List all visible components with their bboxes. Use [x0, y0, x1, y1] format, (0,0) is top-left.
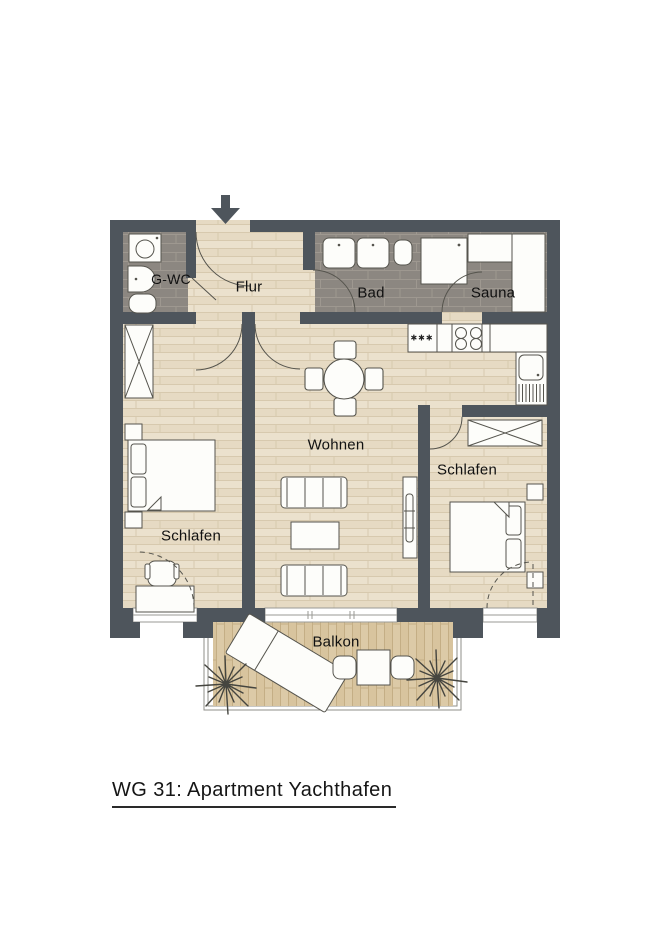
room-label-bad: Bad: [357, 285, 384, 302]
wall-segment: [482, 312, 547, 324]
wall-segment: [453, 622, 483, 638]
chair: [334, 341, 356, 359]
wall-segment: [110, 622, 140, 638]
kitchen-sink-icon: [519, 355, 543, 380]
sofa: [281, 477, 347, 508]
wall-segment: [537, 608, 560, 622]
bath-door-gap: [303, 270, 315, 312]
nightstand: [125, 424, 142, 440]
chair: [305, 368, 323, 390]
nightstand: [527, 484, 543, 500]
floorplan-page: G-WC Flur Bad Sauna Wohnen Schlafen Schl…: [0, 0, 670, 950]
tv-icon: [406, 494, 413, 542]
chair: [391, 656, 414, 679]
freezer-stars-icon: ✱✱✱: [410, 334, 433, 343]
sink-icon: [323, 238, 355, 268]
chair: [365, 368, 383, 390]
wall-segment: [547, 220, 560, 622]
room-label-gwc: G-WC: [151, 271, 191, 287]
wall-segment: [537, 622, 560, 638]
wall-segment: [110, 608, 133, 622]
wall-segment: [250, 220, 560, 232]
plan-title: WG 31: Apartment Yachthafen: [112, 779, 396, 808]
room-label-sauna: Sauna: [471, 285, 515, 302]
toilet-icon: [129, 294, 156, 313]
pillow: [131, 477, 146, 507]
pillow: [506, 539, 521, 568]
desk-chair: [148, 561, 176, 586]
entrance-arrow-icon: [211, 195, 240, 224]
wall-segment: [183, 622, 213, 638]
balcony-table: [357, 650, 390, 685]
wall-segment: [300, 312, 442, 324]
pillow: [131, 444, 146, 474]
sink-icon: [357, 238, 389, 268]
wall-segment: [123, 312, 196, 324]
wall-segment: [418, 405, 430, 608]
chair: [333, 656, 356, 679]
wall-segment: [303, 232, 315, 270]
room-label-wohnen: Wohnen: [308, 437, 365, 454]
chair: [334, 398, 356, 416]
room-label-schlafen-left: Schlafen: [161, 528, 221, 545]
desk: [136, 586, 194, 612]
wall-segment: [110, 220, 123, 622]
nightstand: [527, 572, 543, 588]
room-label-flur: Flur: [236, 279, 263, 296]
wall-segment: [397, 608, 483, 622]
nightstand: [125, 512, 142, 528]
dining-table: [324, 359, 364, 399]
toilet-icon: [394, 240, 412, 265]
sofa: [281, 565, 347, 596]
wall-segment: [462, 405, 547, 417]
wall-segment: [242, 312, 255, 608]
room-label-schlafen-right: Schlafen: [437, 462, 497, 479]
coffee-table: [291, 522, 339, 549]
room-label-balkon: Balkon: [312, 634, 359, 651]
entrance-threshold: [196, 220, 250, 232]
